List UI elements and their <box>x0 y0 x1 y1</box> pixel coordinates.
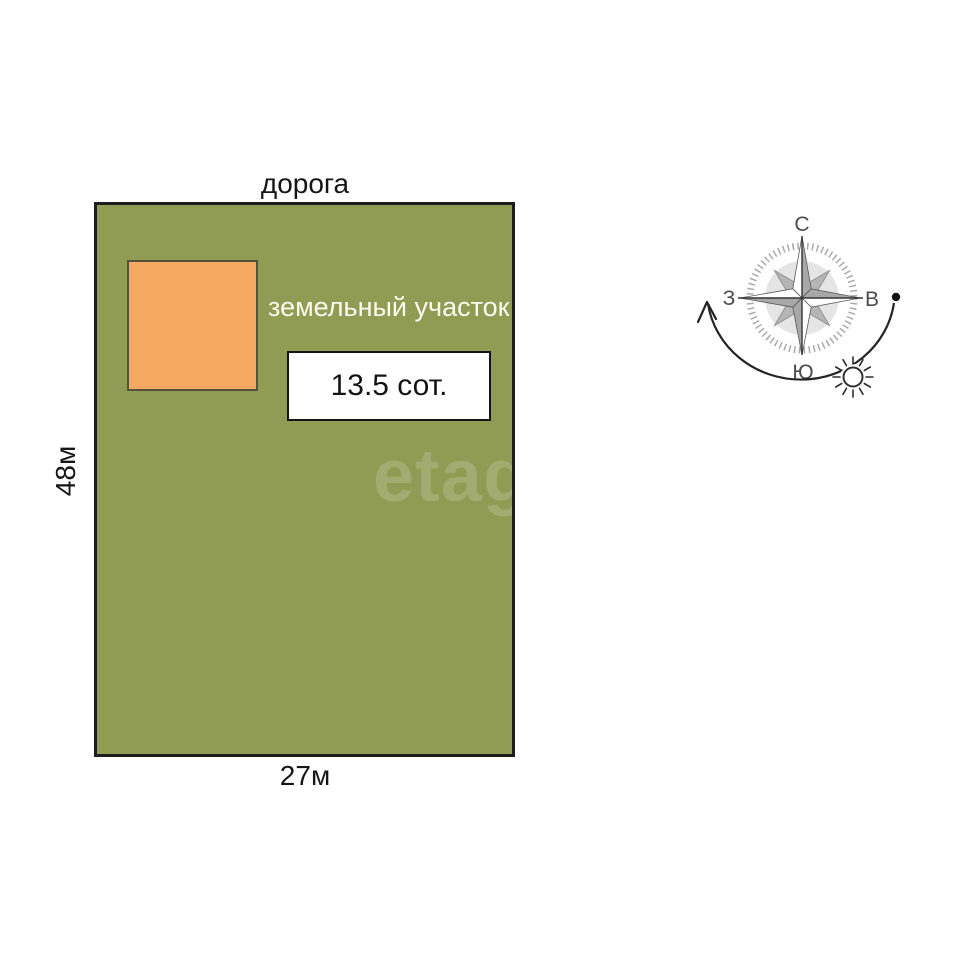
compass-label-north: С <box>794 213 809 236</box>
compass-label-west: З <box>723 287 736 310</box>
compass-cardinal-points <box>740 236 860 355</box>
watermark-text: etagi <box>373 433 515 518</box>
land-plot-diagram: дорога etagi земельный участок 13.5 сот.… <box>0 0 960 960</box>
compass-rose: С З В Ю <box>690 200 920 420</box>
area-label: 13.5 сот. <box>331 369 448 403</box>
plot-label: земельный участок <box>268 292 508 322</box>
road-label: дорога <box>95 169 515 199</box>
building-square <box>127 260 258 391</box>
sun-icon <box>833 357 873 397</box>
width-dimension-label: 27м <box>95 761 515 791</box>
rotation-arrowhead <box>698 302 716 322</box>
compass-label-east: В <box>865 288 879 311</box>
height-dimension-label: 48м <box>51 421 81 521</box>
area-box: 13.5 сот. <box>287 351 491 421</box>
land-plot: etagi земельный участок 13.5 сот. <box>94 202 515 757</box>
east-marker-dot <box>892 293 900 301</box>
